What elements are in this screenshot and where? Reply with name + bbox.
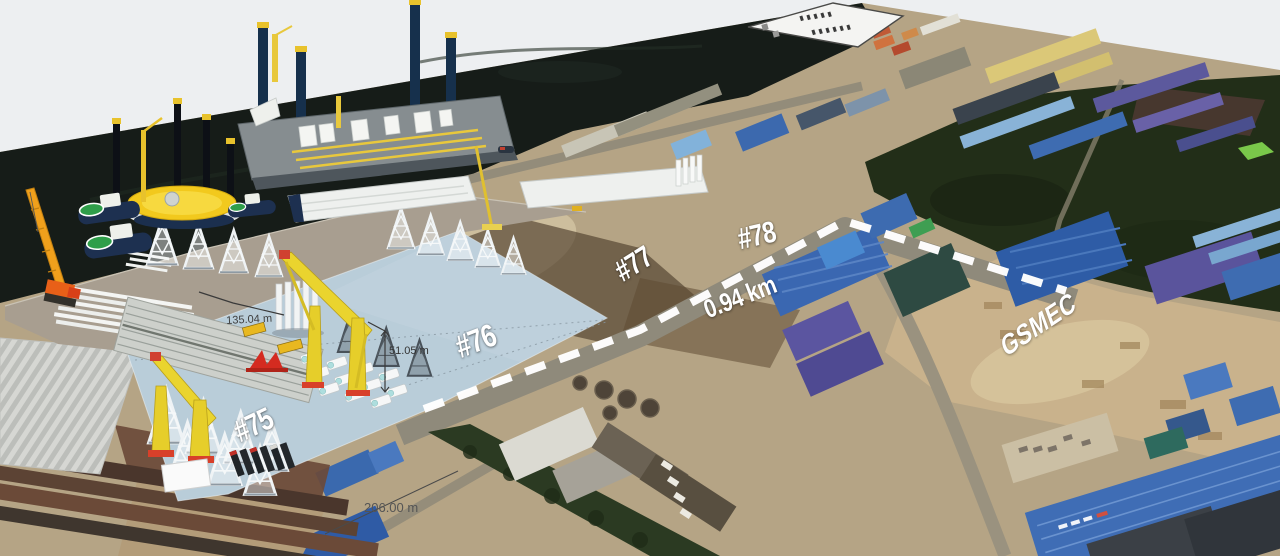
viewport-3d-scene[interactable]: #75 #76 #77 #78 0.94 km GSMEC 135.04 m 5…: [0, 0, 1280, 556]
site-office-container: [161, 459, 210, 492]
workboat: [498, 146, 514, 153]
dimension-label-height: 51.05 m: [389, 346, 429, 357]
dimension-label-length: 206.00 m: [364, 501, 418, 514]
